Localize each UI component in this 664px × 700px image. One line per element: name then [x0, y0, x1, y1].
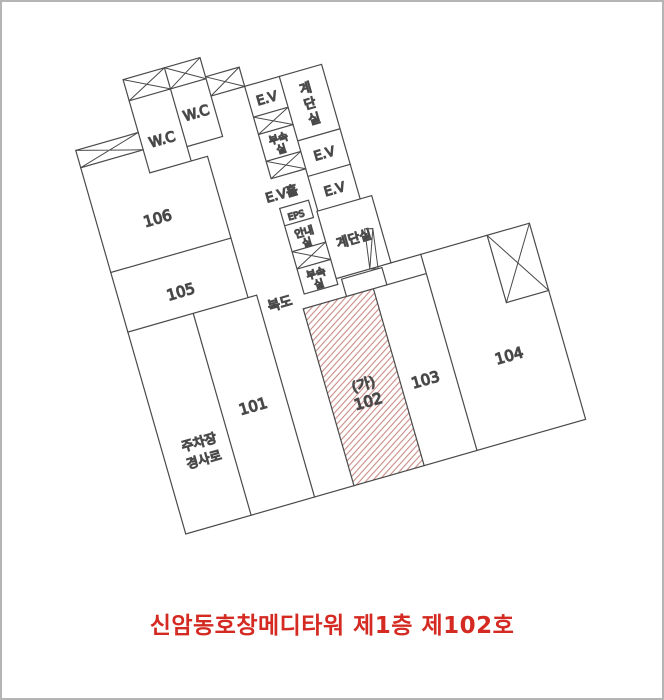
scan-page: W.C W.C E.V 부속 실 계 단 실 E.V E.V홀 E.V EPS …: [0, 0, 664, 700]
room-101-label: 101: [237, 394, 269, 419]
room-105-label: 105: [165, 279, 197, 304]
corridor-label: 복도: [266, 293, 294, 315]
wc-left-label: W.C: [147, 129, 177, 152]
stairwell-top-label-char1: 계: [298, 80, 314, 98]
x-brace-marks: [61, 2, 549, 405]
annex-top-label-line2: 실: [275, 143, 288, 157]
elevator-hall-label: E.V홀: [264, 183, 300, 207]
stairwell-top-label-char3: 실: [307, 111, 323, 129]
stairwell-top-label-char2: 단: [302, 96, 318, 114]
elevator-low-label: E.V: [322, 180, 347, 200]
floor-plan-drawing: W.C W.C E.V 부속 실 계 단 실 E.V E.V홀 E.V EPS …: [2, 2, 664, 700]
elevator-mid-label: E.V: [312, 144, 337, 164]
info-room-label-line2: 실: [301, 236, 314, 250]
eps-label: EPS: [287, 209, 306, 223]
plan-title: 신암동호창메디타워 제1층 제102호: [2, 606, 662, 640]
room-104-label: 104: [493, 343, 525, 368]
room-106-label: 106: [141, 206, 173, 231]
stairwell-mid-label: 계단실: [335, 227, 374, 251]
annex-low-label-line2: 실: [313, 277, 326, 291]
room-103-label: 103: [409, 367, 441, 392]
elevator-top-label: E.V: [255, 89, 280, 109]
wc-right-label: W.C: [181, 102, 211, 125]
